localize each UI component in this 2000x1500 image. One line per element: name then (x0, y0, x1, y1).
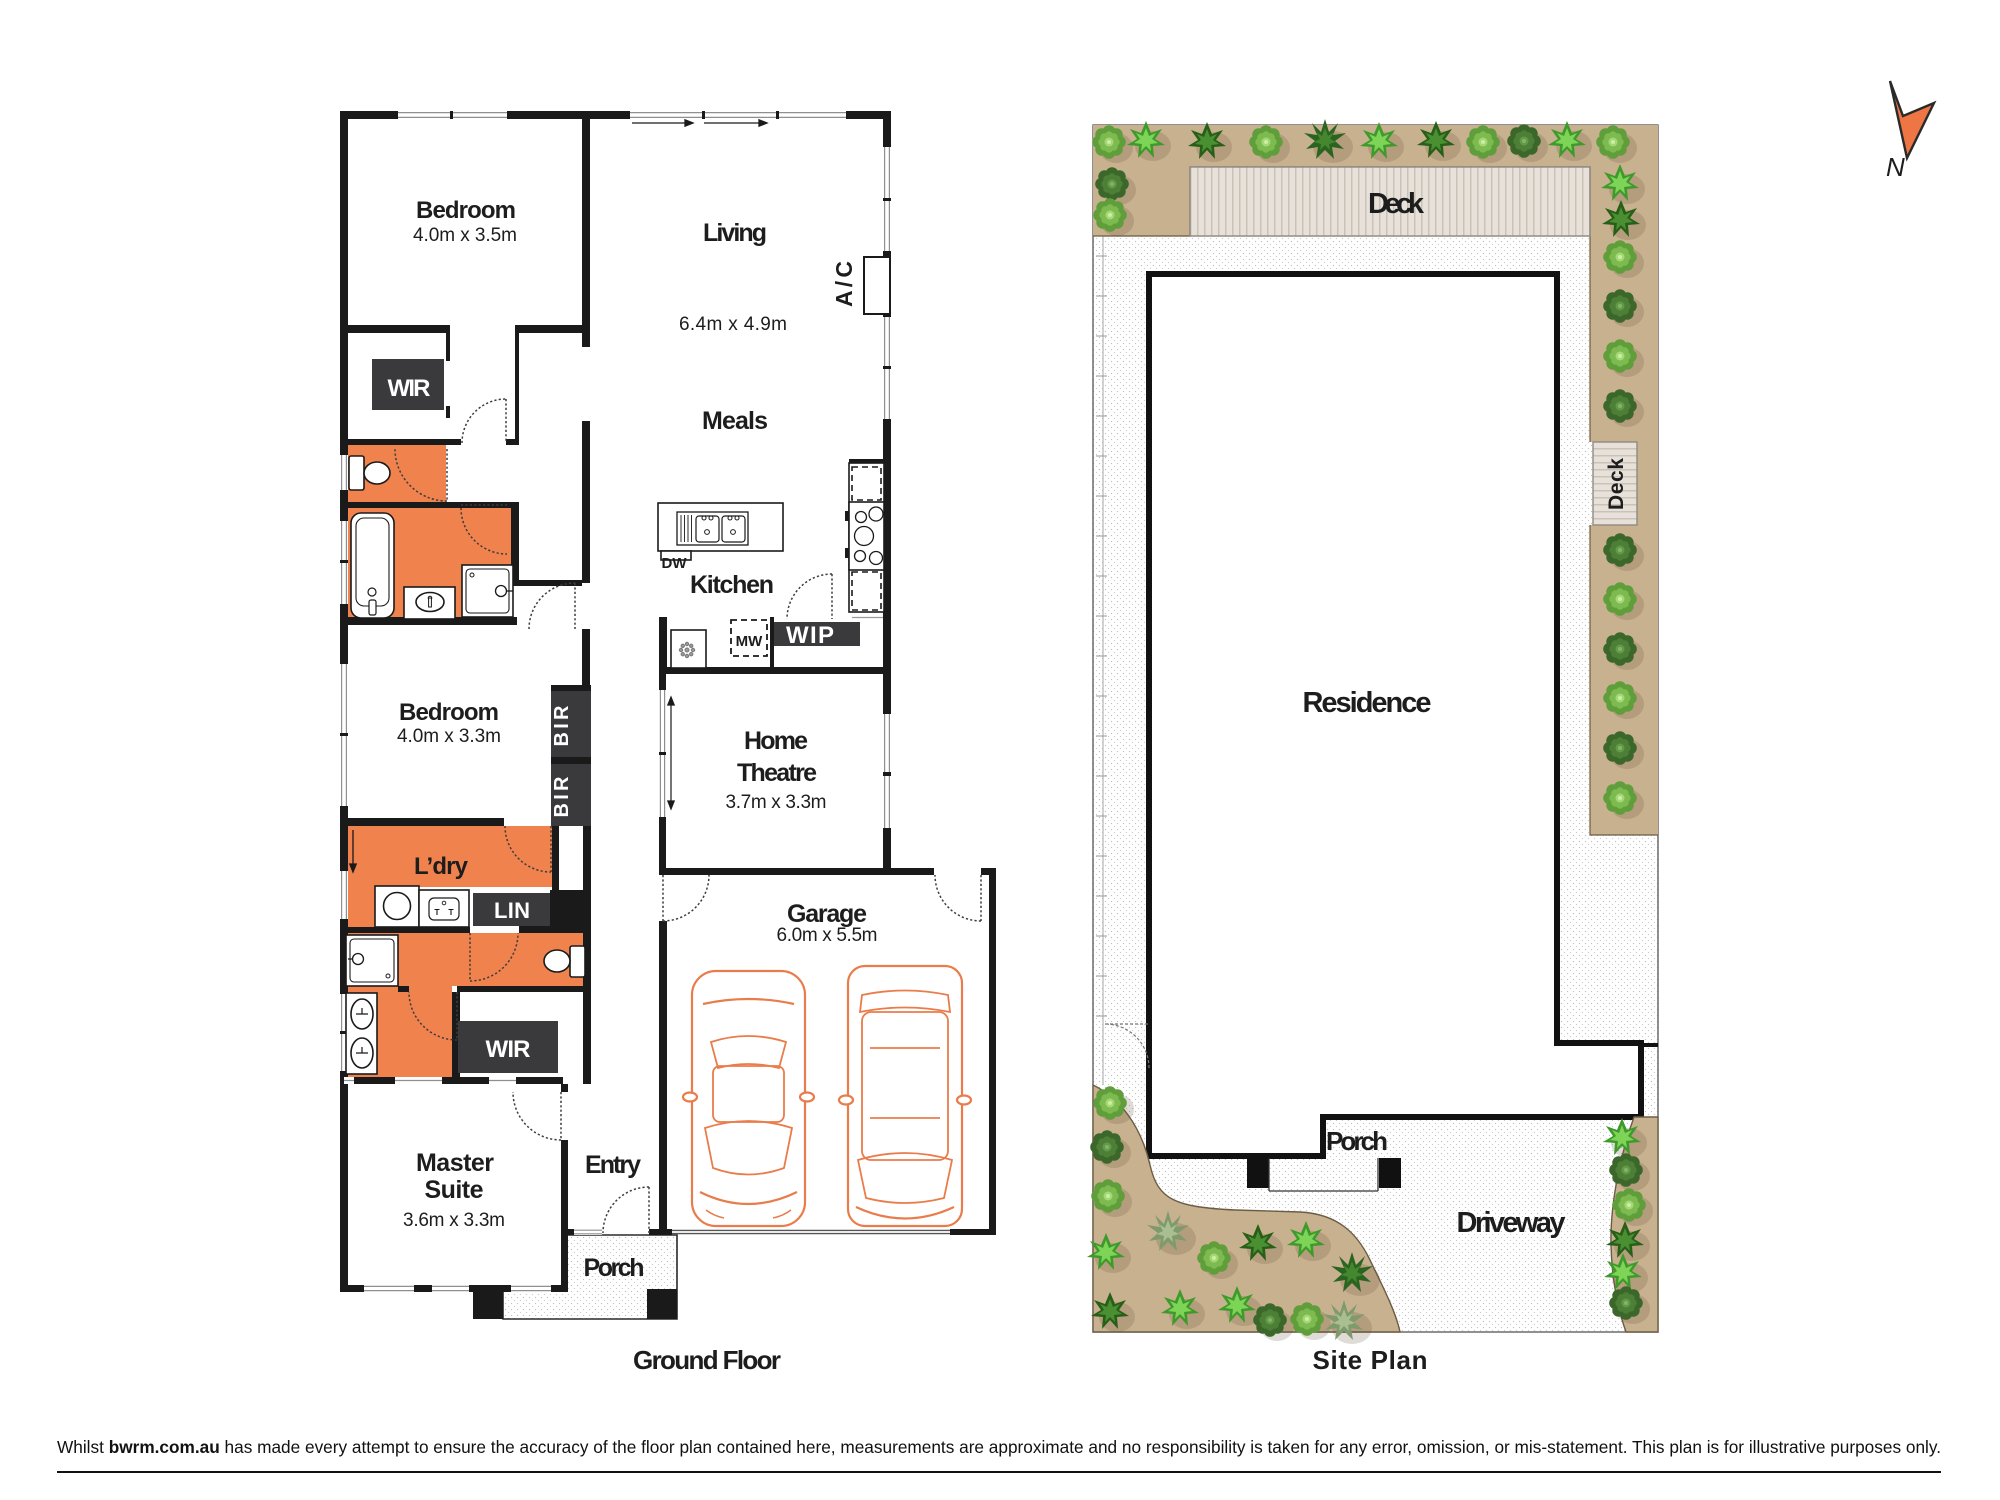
svg-text:WIR: WIR (388, 375, 431, 402)
svg-text:Living: Living (703, 219, 767, 247)
svg-text:Whilst bwrm.com.au has made ev: Whilst bwrm.com.au has made every attemp… (57, 1437, 1941, 1457)
svg-text:Porch: Porch (584, 1254, 645, 1282)
svg-text:Residence: Residence (1303, 687, 1432, 719)
svg-text:Theatre: Theatre (737, 759, 817, 787)
svg-text:BIR: BIR (551, 776, 573, 818)
svg-text:4.0m x 3.5m: 4.0m x 3.5m (413, 225, 517, 246)
svg-text:3.6m x 3.3m: 3.6m x 3.3m (403, 1210, 505, 1231)
svg-text:Deck: Deck (1368, 188, 1425, 220)
svg-text:6.4m x 4.9m: 6.4m x 4.9m (679, 314, 787, 335)
svg-text:L’dry: L’dry (414, 853, 469, 880)
svg-text:WIR: WIR (486, 1036, 531, 1063)
svg-text:Garage: Garage (787, 900, 867, 928)
svg-text:WIP: WIP (786, 622, 834, 649)
svg-text:Home: Home (744, 727, 808, 755)
svg-text:Site Plan: Site Plan (1313, 1345, 1428, 1375)
svg-text:Porch: Porch (1326, 1126, 1388, 1156)
svg-text:Suite: Suite (425, 1176, 484, 1204)
svg-text:Ground Floor: Ground Floor (633, 1345, 781, 1375)
svg-text:Entry: Entry (585, 1151, 641, 1179)
svg-text:Master: Master (416, 1149, 494, 1177)
svg-text:N: N (1886, 152, 1905, 182)
svg-text:Bedroom: Bedroom (416, 197, 516, 224)
svg-text:Kitchen: Kitchen (690, 571, 774, 599)
svg-text:BIR: BIR (551, 705, 573, 747)
svg-text:Deck: Deck (1605, 458, 1628, 510)
svg-text:DW: DW (662, 555, 688, 572)
svg-text:MW: MW (736, 633, 763, 650)
svg-text:6.0m x 5.5m: 6.0m x 5.5m (777, 925, 878, 946)
svg-text:A/C: A/C (831, 261, 857, 307)
svg-text:3.7m x 3.3m: 3.7m x 3.3m (726, 792, 827, 813)
svg-text:Meals: Meals (702, 407, 768, 435)
svg-text:Bedroom: Bedroom (399, 699, 499, 726)
svg-text:Driveway: Driveway (1457, 1207, 1566, 1239)
svg-text:LIN: LIN (494, 898, 530, 923)
svg-text:4.0m x 3.3m: 4.0m x 3.3m (397, 726, 501, 747)
